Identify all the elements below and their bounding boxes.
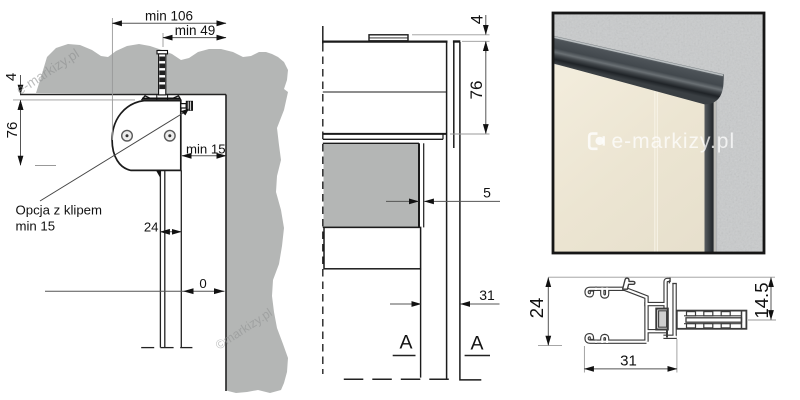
svg-text:min 106: min 106	[145, 9, 193, 24]
svg-text:5: 5	[483, 185, 491, 201]
svg-text:76: 76	[467, 81, 486, 100]
svg-text:4: 4	[3, 73, 20, 81]
svg-text:24: 24	[144, 219, 159, 234]
svg-text:min 49: min 49	[175, 23, 216, 38]
svg-text:Opcja z klipem: Opcja z klipem	[16, 203, 102, 218]
svg-text:31: 31	[479, 287, 495, 303]
svg-text:min 15: min 15	[16, 219, 56, 234]
svg-text:A: A	[399, 332, 412, 354]
svg-text:14.5: 14.5	[751, 282, 772, 318]
svg-text:24: 24	[526, 298, 547, 319]
svg-text:A: A	[470, 332, 483, 354]
svg-text:min 15: min 15	[186, 142, 226, 157]
svg-text:0: 0	[199, 276, 206, 291]
svg-text:4: 4	[468, 15, 487, 24]
svg-text:31: 31	[620, 353, 637, 370]
svg-text:76: 76	[4, 122, 21, 139]
svg-text:e-markizy.pl: e-markizy.pl	[612, 130, 736, 153]
